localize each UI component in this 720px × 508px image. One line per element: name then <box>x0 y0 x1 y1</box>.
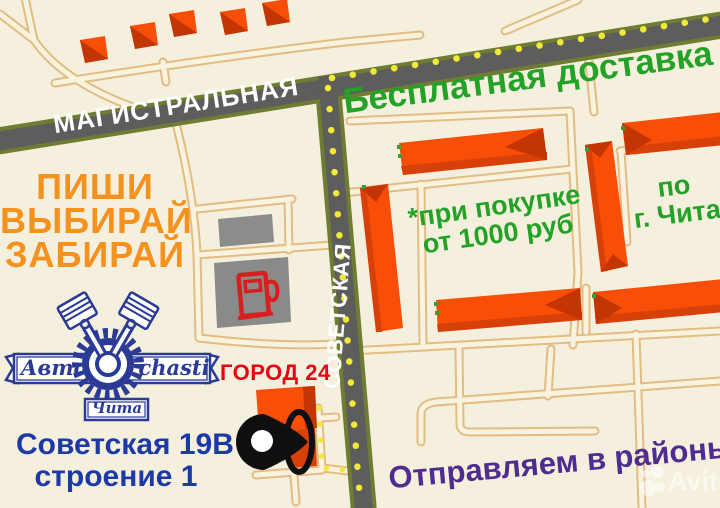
delivery-area-text: по г. Чита <box>625 166 720 233</box>
house <box>220 8 248 35</box>
address-text: Советская 19В строение 1 <box>16 429 216 493</box>
avito-dots-icon <box>636 460 668 500</box>
slogan-line2: ВЫБИРАЙ <box>0 204 190 238</box>
building <box>360 184 403 332</box>
logo-word-left: Авто <box>18 355 90 380</box>
gray-building <box>218 214 274 247</box>
slogan-line1: ПИШИ <box>0 170 190 204</box>
gas-station <box>214 257 291 328</box>
house <box>262 0 290 26</box>
address-line1: Советская 19В <box>16 429 216 461</box>
house <box>80 36 108 63</box>
house <box>169 10 197 37</box>
slogan-line3: ЗАБИРАЙ <box>0 238 190 272</box>
shop-landmark-text: ГОРОД 24 <box>220 360 330 386</box>
building <box>592 279 720 324</box>
building <box>621 112 720 155</box>
logo-city-text: Чита <box>86 399 148 417</box>
watermark-label: Avito <box>668 466 720 497</box>
logo-word-right: chasti <box>138 355 210 380</box>
house <box>130 22 158 49</box>
building <box>397 128 547 175</box>
slogan-text: ПИШИ ВЫБИРАЙ ЗАБИРАЙ <box>0 170 190 272</box>
watermark: Avito <box>636 460 720 502</box>
address-line2: строение 1 <box>16 461 216 493</box>
building <box>434 288 582 332</box>
map-promo-image: МАГИСТРАЛЬНАЯ СОВЕТСКАЯ Бесплатная доста… <box>0 0 720 508</box>
